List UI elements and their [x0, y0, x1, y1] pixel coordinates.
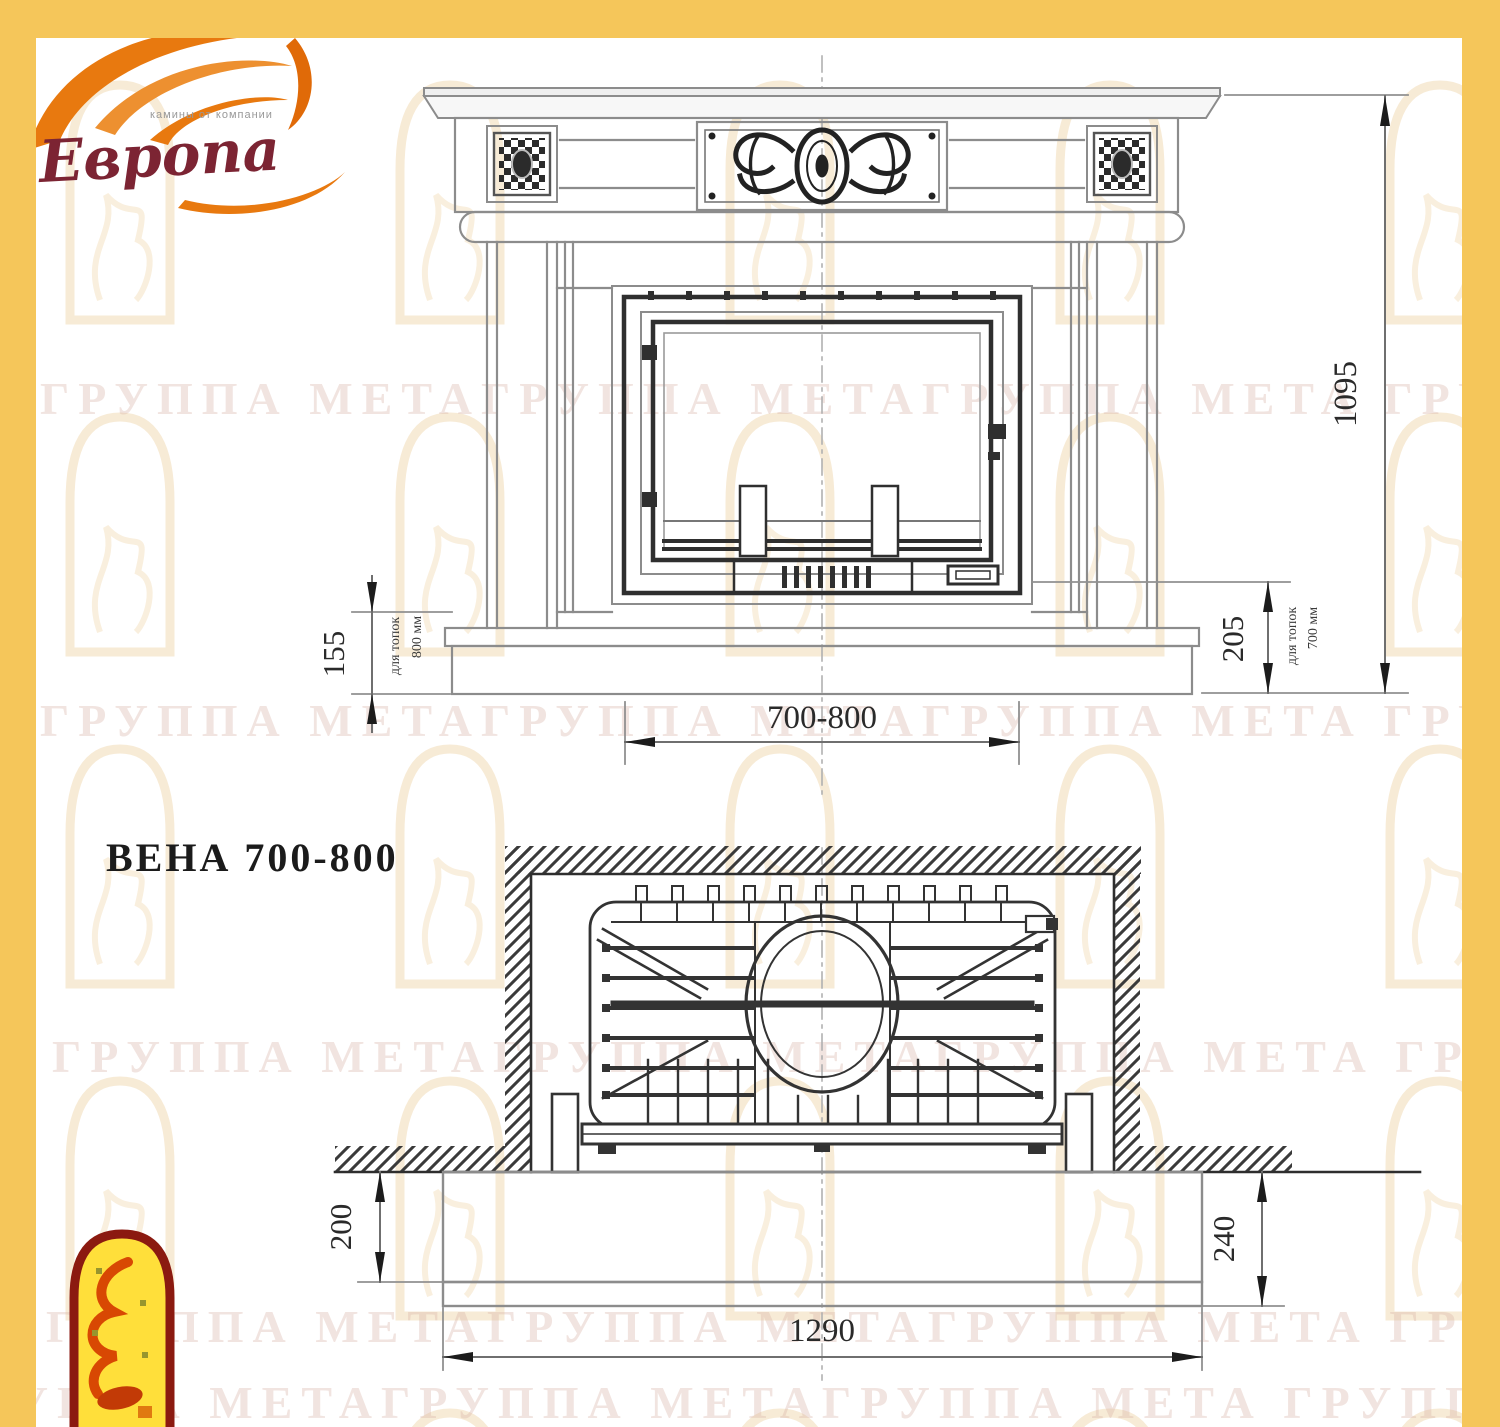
- log-retainer-post: [872, 486, 898, 556]
- brand-name: Европа: [35, 115, 282, 196]
- dimension-depth-240: 240: [1202, 1172, 1284, 1306]
- front-elevation-drawing: 1095 155 для топок 800 мм 205 для топок …: [316, 56, 1408, 796]
- meta-arch-logo: [74, 1234, 170, 1427]
- mantel-shelf: [424, 88, 1220, 118]
- side-support: [552, 1094, 578, 1172]
- log-retainer-post: [740, 486, 766, 556]
- dim-205-label: 205: [1215, 616, 1250, 663]
- frame-top: [0, 0, 1500, 38]
- page: ГРУППА МЕТАГРУППА МЕТАГРУППА МЕТА ГРУППА…: [0, 0, 1500, 1427]
- europa-logo: камины от компании Европа: [28, 29, 345, 214]
- dimension-left-155: 155 для топок 800 мм: [316, 576, 452, 732]
- dim-240-label: 240: [1206, 1216, 1241, 1263]
- dim-155-label: 155: [316, 631, 351, 678]
- technical-drawing: 1095 155 для топок 800 мм 205 для топок …: [0, 0, 1500, 1427]
- door-hinge: [642, 492, 657, 507]
- dim-height-label: 1095: [1328, 361, 1364, 427]
- dimension-right-205: 205 для топок 700 мм: [1032, 582, 1321, 693]
- dim-205-note-value: 700 мм: [1306, 607, 1321, 649]
- plan-view-drawing: 200 240 1290: [323, 846, 1420, 1380]
- dim-155-note-value: 800 мм: [410, 616, 425, 658]
- air-grille: [782, 566, 871, 588]
- dimension-height: 1095: [1202, 95, 1408, 693]
- dim-200-label: 200: [323, 1204, 358, 1251]
- dim-1290-label: 1290: [789, 1313, 855, 1349]
- dim-opening-label: 700-800: [767, 700, 877, 736]
- dim-155-note-label: для топок: [388, 617, 403, 675]
- dim-205-note-label: для топок: [1285, 607, 1300, 665]
- door-handle: [988, 424, 1006, 439]
- frame-left: [0, 38, 36, 1427]
- door-hinge: [642, 345, 657, 360]
- side-support: [1066, 1094, 1092, 1172]
- firebox-plan: [552, 886, 1092, 1172]
- dimension-depth-200: 200: [323, 1172, 443, 1282]
- drawing-title: ВЕНА 700-800: [106, 834, 399, 881]
- frame-right: [1462, 38, 1500, 1427]
